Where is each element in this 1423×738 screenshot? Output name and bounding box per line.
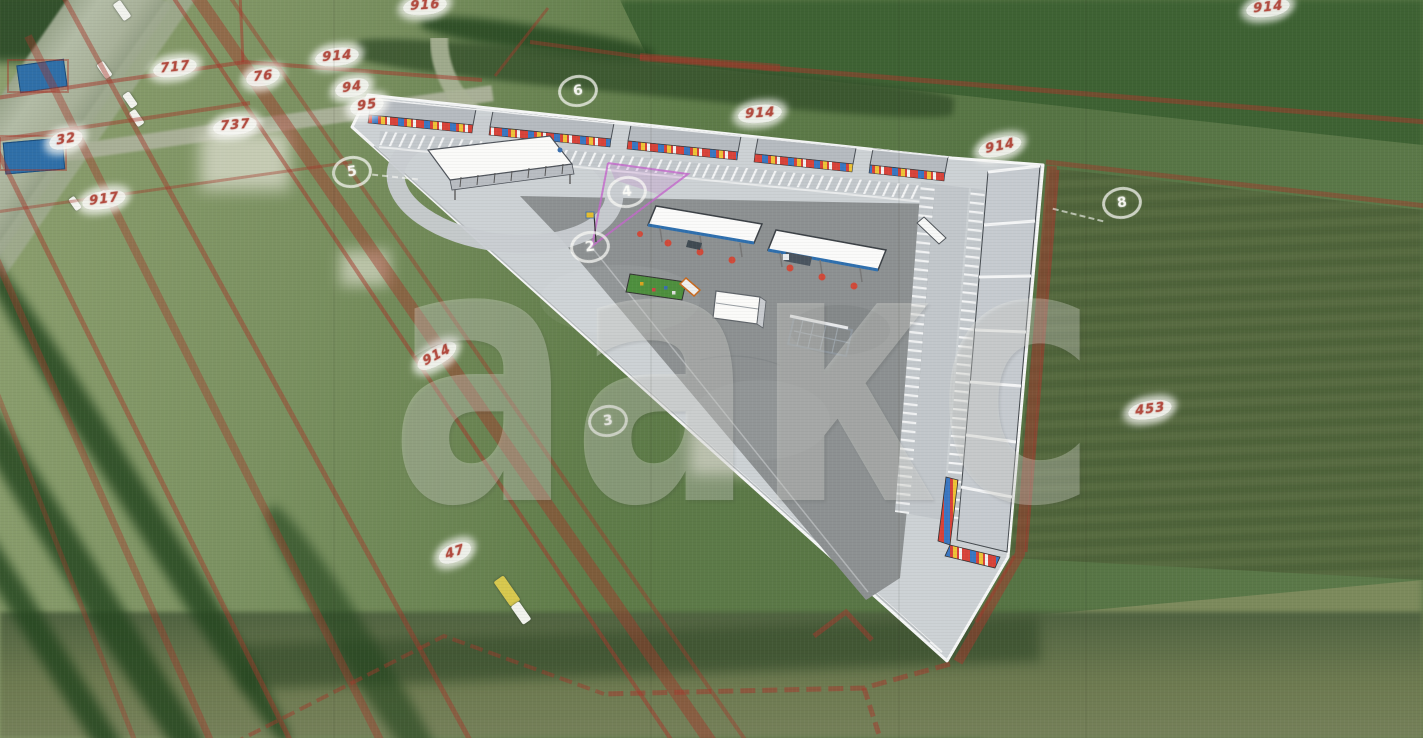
aerial-photo: 717 76 914 94 95 737 32 917 916 914 914 … [0,0,1423,738]
cadastral-boundary-site [0,0,1423,738]
